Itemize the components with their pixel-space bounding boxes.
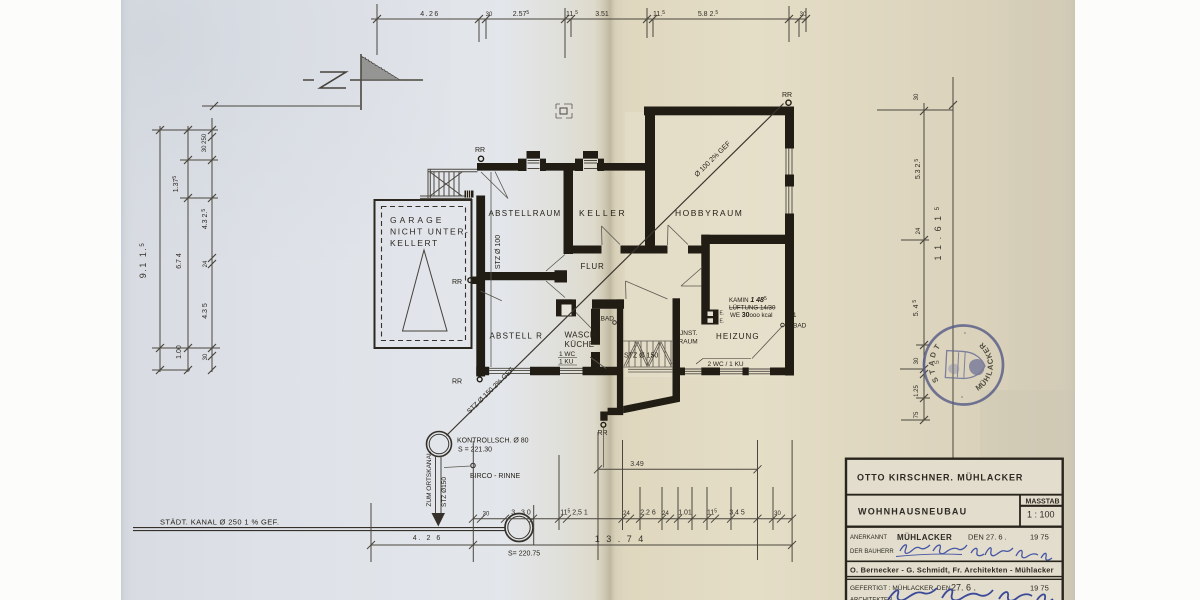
svg-text:5: 5 (934, 360, 941, 364)
svg-text:RR: RR (475, 147, 485, 154)
svg-text:3 . 3 0: 3 . 3 0 (511, 510, 531, 517)
svg-text:E.: E. (720, 311, 725, 317)
svg-text:2 WC / 1 KU: 2 WC / 1 KU (708, 361, 744, 368)
svg-text:1.00: 1.00 (176, 345, 183, 359)
svg-text:RR: RR (782, 92, 792, 99)
svg-text:1.25: 1.25 (914, 385, 920, 397)
svg-text:RAUM: RAUM (679, 339, 698, 346)
svg-text:75: 75 (914, 411, 920, 418)
svg-text:STZ Ø150: STZ Ø150 (441, 477, 448, 507)
svg-text:GEFERTIGT : MÜHLACKER, DEN: GEFERTIGT : MÜHLACKER, DEN (850, 584, 951, 592)
svg-text:ABSTELLRAUM: ABSTELLRAUM (489, 209, 562, 218)
svg-text:E.: E. (720, 319, 725, 325)
svg-text:5.8 2.5: 5.8 2.5 (698, 10, 719, 18)
svg-text:HEIZUNG: HEIZUNG (716, 332, 760, 341)
svg-text:RR: RR (452, 279, 462, 286)
svg-text:19 75: 19 75 (1030, 584, 1049, 593)
svg-text:115 2,5 1: 115 2,5 1 (560, 509, 588, 517)
svg-text:MÜHLACKER: MÜHLACKER (897, 533, 952, 542)
svg-text:GARAGE: GARAGE (390, 215, 444, 225)
svg-text:1 WC: 1 WC (559, 351, 576, 358)
svg-text:KAMIN 1 485: KAMIN 1 485 (729, 296, 767, 304)
svg-text:24: 24 (662, 511, 669, 517)
svg-text:KELLER: KELLER (579, 208, 627, 218)
svg-text:O. Bernecker - G. Schmidt,: O. Bernecker - G. Schmidt, Fr. Architekt… (850, 566, 1054, 575)
svg-text:WE 30ooo kcal: WE 30ooo kcal (730, 312, 773, 319)
svg-text:30 250: 30 250 (202, 133, 208, 152)
svg-text:KÜCHE: KÜCHE (565, 340, 595, 349)
svg-text:ANERKANNT: ANERKANNT (850, 535, 887, 541)
svg-text:WASCH: WASCH (565, 331, 596, 340)
svg-text:1 : 100: 1 : 100 (1027, 510, 1055, 520)
svg-text:BIRCO - RINNE: BIRCO - RINNE (470, 473, 521, 480)
svg-text:1BAD: 1BAD (597, 316, 614, 323)
svg-text:KONTROLLSCH. Ø 80: KONTROLLSCH. Ø 80 (457, 438, 529, 445)
svg-text:DEN 27. 6 .: DEN 27. 6 . (968, 533, 1007, 542)
svg-text:6.7 4: 6.7 4 (176, 253, 183, 269)
svg-text:ABSTELL R: ABSTELL R (490, 332, 544, 341)
svg-text:OTTO KIRSCHNER. MÜHLACKER: OTTO KIRSCHNER. MÜHLACKER (857, 473, 1023, 483)
svg-text:30: 30 (774, 511, 781, 517)
svg-text:27. 6 .: 27. 6 . (951, 583, 976, 593)
svg-text:1 KU: 1 KU (559, 359, 574, 366)
svg-text:19 75: 19 75 (1030, 533, 1049, 542)
svg-text:30: 30 (914, 93, 920, 100)
svg-text:5.3 2.5: 5.3 2.5 (914, 159, 922, 180)
svg-text:30: 30 (914, 357, 920, 364)
svg-text:·: · (964, 328, 967, 337)
svg-text:RR: RR (452, 379, 462, 386)
svg-text:STZ Ø 100: STZ Ø 100 (495, 235, 502, 269)
svg-text:4. 2 6: 4. 2 6 (413, 535, 443, 542)
svg-text:BAD: BAD (793, 323, 807, 330)
svg-text:24: 24 (916, 227, 922, 234)
svg-text:24: 24 (203, 260, 209, 267)
svg-text:S = 221.30: S = 221.30 (458, 447, 492, 454)
svg-text:9.1 1.5: 9.1 1.5 (138, 242, 148, 278)
svg-text:1.01: 1.01 (678, 510, 692, 517)
svg-text:HOBBYRAUM: HOBBYRAUM (675, 208, 743, 218)
svg-text:3.51: 3.51 (595, 11, 609, 18)
svg-text:FLUR: FLUR (581, 262, 605, 271)
svg-text:DER BAUHERR: DER BAUHERR (850, 549, 894, 555)
svg-text:JNST.: JNST. (680, 330, 698, 337)
svg-text:WOHNHAUSNEUBAU: WOHNHAUSNEUBAU (858, 507, 967, 517)
svg-text:S= 220.75: S= 220.75 (508, 551, 540, 558)
svg-text:1 1 . 6 1 5: 1 1 . 6 1 5 (933, 206, 943, 261)
svg-text:MASSTAB: MASSTAB (1026, 499, 1060, 506)
svg-text:30: 30 (203, 353, 209, 360)
svg-text:STZ Ø 150: STZ Ø 150 (624, 353, 658, 360)
svg-text:STÄDT. KANAL Ø 250 1 % G: STÄDT. KANAL Ø 250 1 % GEF. (160, 518, 279, 527)
svg-text:3.49: 3.49 (630, 461, 644, 468)
svg-text:30: 30 (486, 12, 493, 18)
svg-text:ZUM ORTSKANAL: ZUM ORTSKANAL (426, 451, 433, 507)
svg-text:NICHT UNTER-: NICHT UNTER- (390, 227, 469, 237)
svg-text:1: 1 (793, 312, 797, 319)
svg-text:RR: RR (598, 430, 608, 437)
svg-text:4.3 5: 4.3 5 (202, 303, 209, 319)
svg-text:3.4 5: 3.4 5 (729, 510, 745, 517)
svg-text:4.3 2.5: 4.3 2.5 (201, 209, 209, 230)
svg-text:4.26: 4.26 (420, 11, 440, 18)
svg-text:1 3 . 7 4: 1 3 . 7 4 (595, 534, 646, 544)
svg-text:2.2 6: 2.2 6 (640, 510, 656, 517)
svg-text:KELLERT: KELLERT (390, 238, 439, 248)
svg-text:30: 30 (483, 512, 490, 518)
svg-text:30: 30 (800, 12, 807, 18)
svg-text:24: 24 (623, 511, 630, 517)
svg-text:LÜFTUNG 14/30: LÜFTUNG 14/30 (729, 305, 776, 312)
svg-text:·: · (960, 392, 963, 401)
